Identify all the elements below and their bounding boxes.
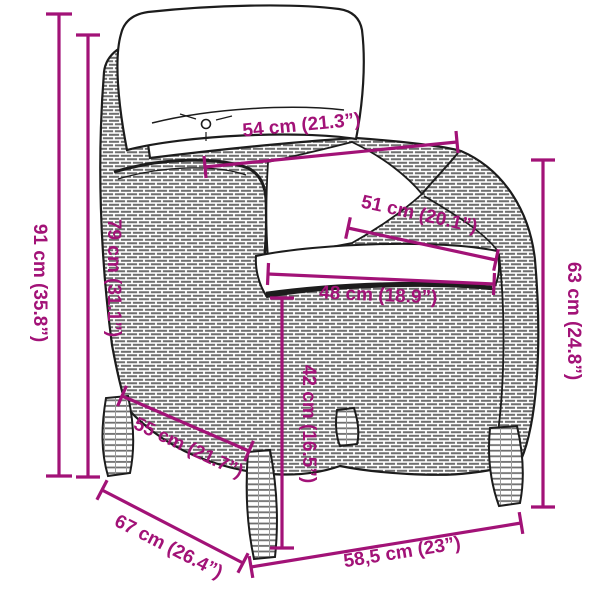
dimension-diagram-canvas: 91 cm (35.8”) 79 cm (31.1”) 54 cm (21.3”… <box>0 0 600 600</box>
dimension-label-arm-side-height: 63 cm (24.8”) <box>563 262 584 380</box>
back-pillow-button <box>202 120 211 129</box>
dimension-base-width: 58,5 cm (23”) <box>249 512 523 578</box>
dimension-label-total-depth: 67 cm (26.4”) <box>111 511 226 583</box>
dimension-label-back-height: 79 cm (31.1”) <box>103 219 124 337</box>
dimension-label-total-height: 91 cm (35.8”) <box>29 224 50 342</box>
back-right-leg <box>489 426 523 506</box>
chair-dimension-diagram: 91 cm (35.8”) 79 cm (31.1”) 54 cm (21.3”… <box>0 0 600 600</box>
front-left-leg <box>102 396 133 476</box>
dimension-label-base-width: 58,5 cm (23”) <box>342 533 462 572</box>
dimension-total-depth: 67 cm (26.4”) <box>97 480 248 583</box>
dimension-label-seat-height: 42 cm (16.5”) <box>298 365 319 483</box>
front-right-leg <box>247 450 277 559</box>
back-left-leg <box>336 408 358 446</box>
dimension-total-height: 91 cm (35.8”) <box>29 14 72 476</box>
